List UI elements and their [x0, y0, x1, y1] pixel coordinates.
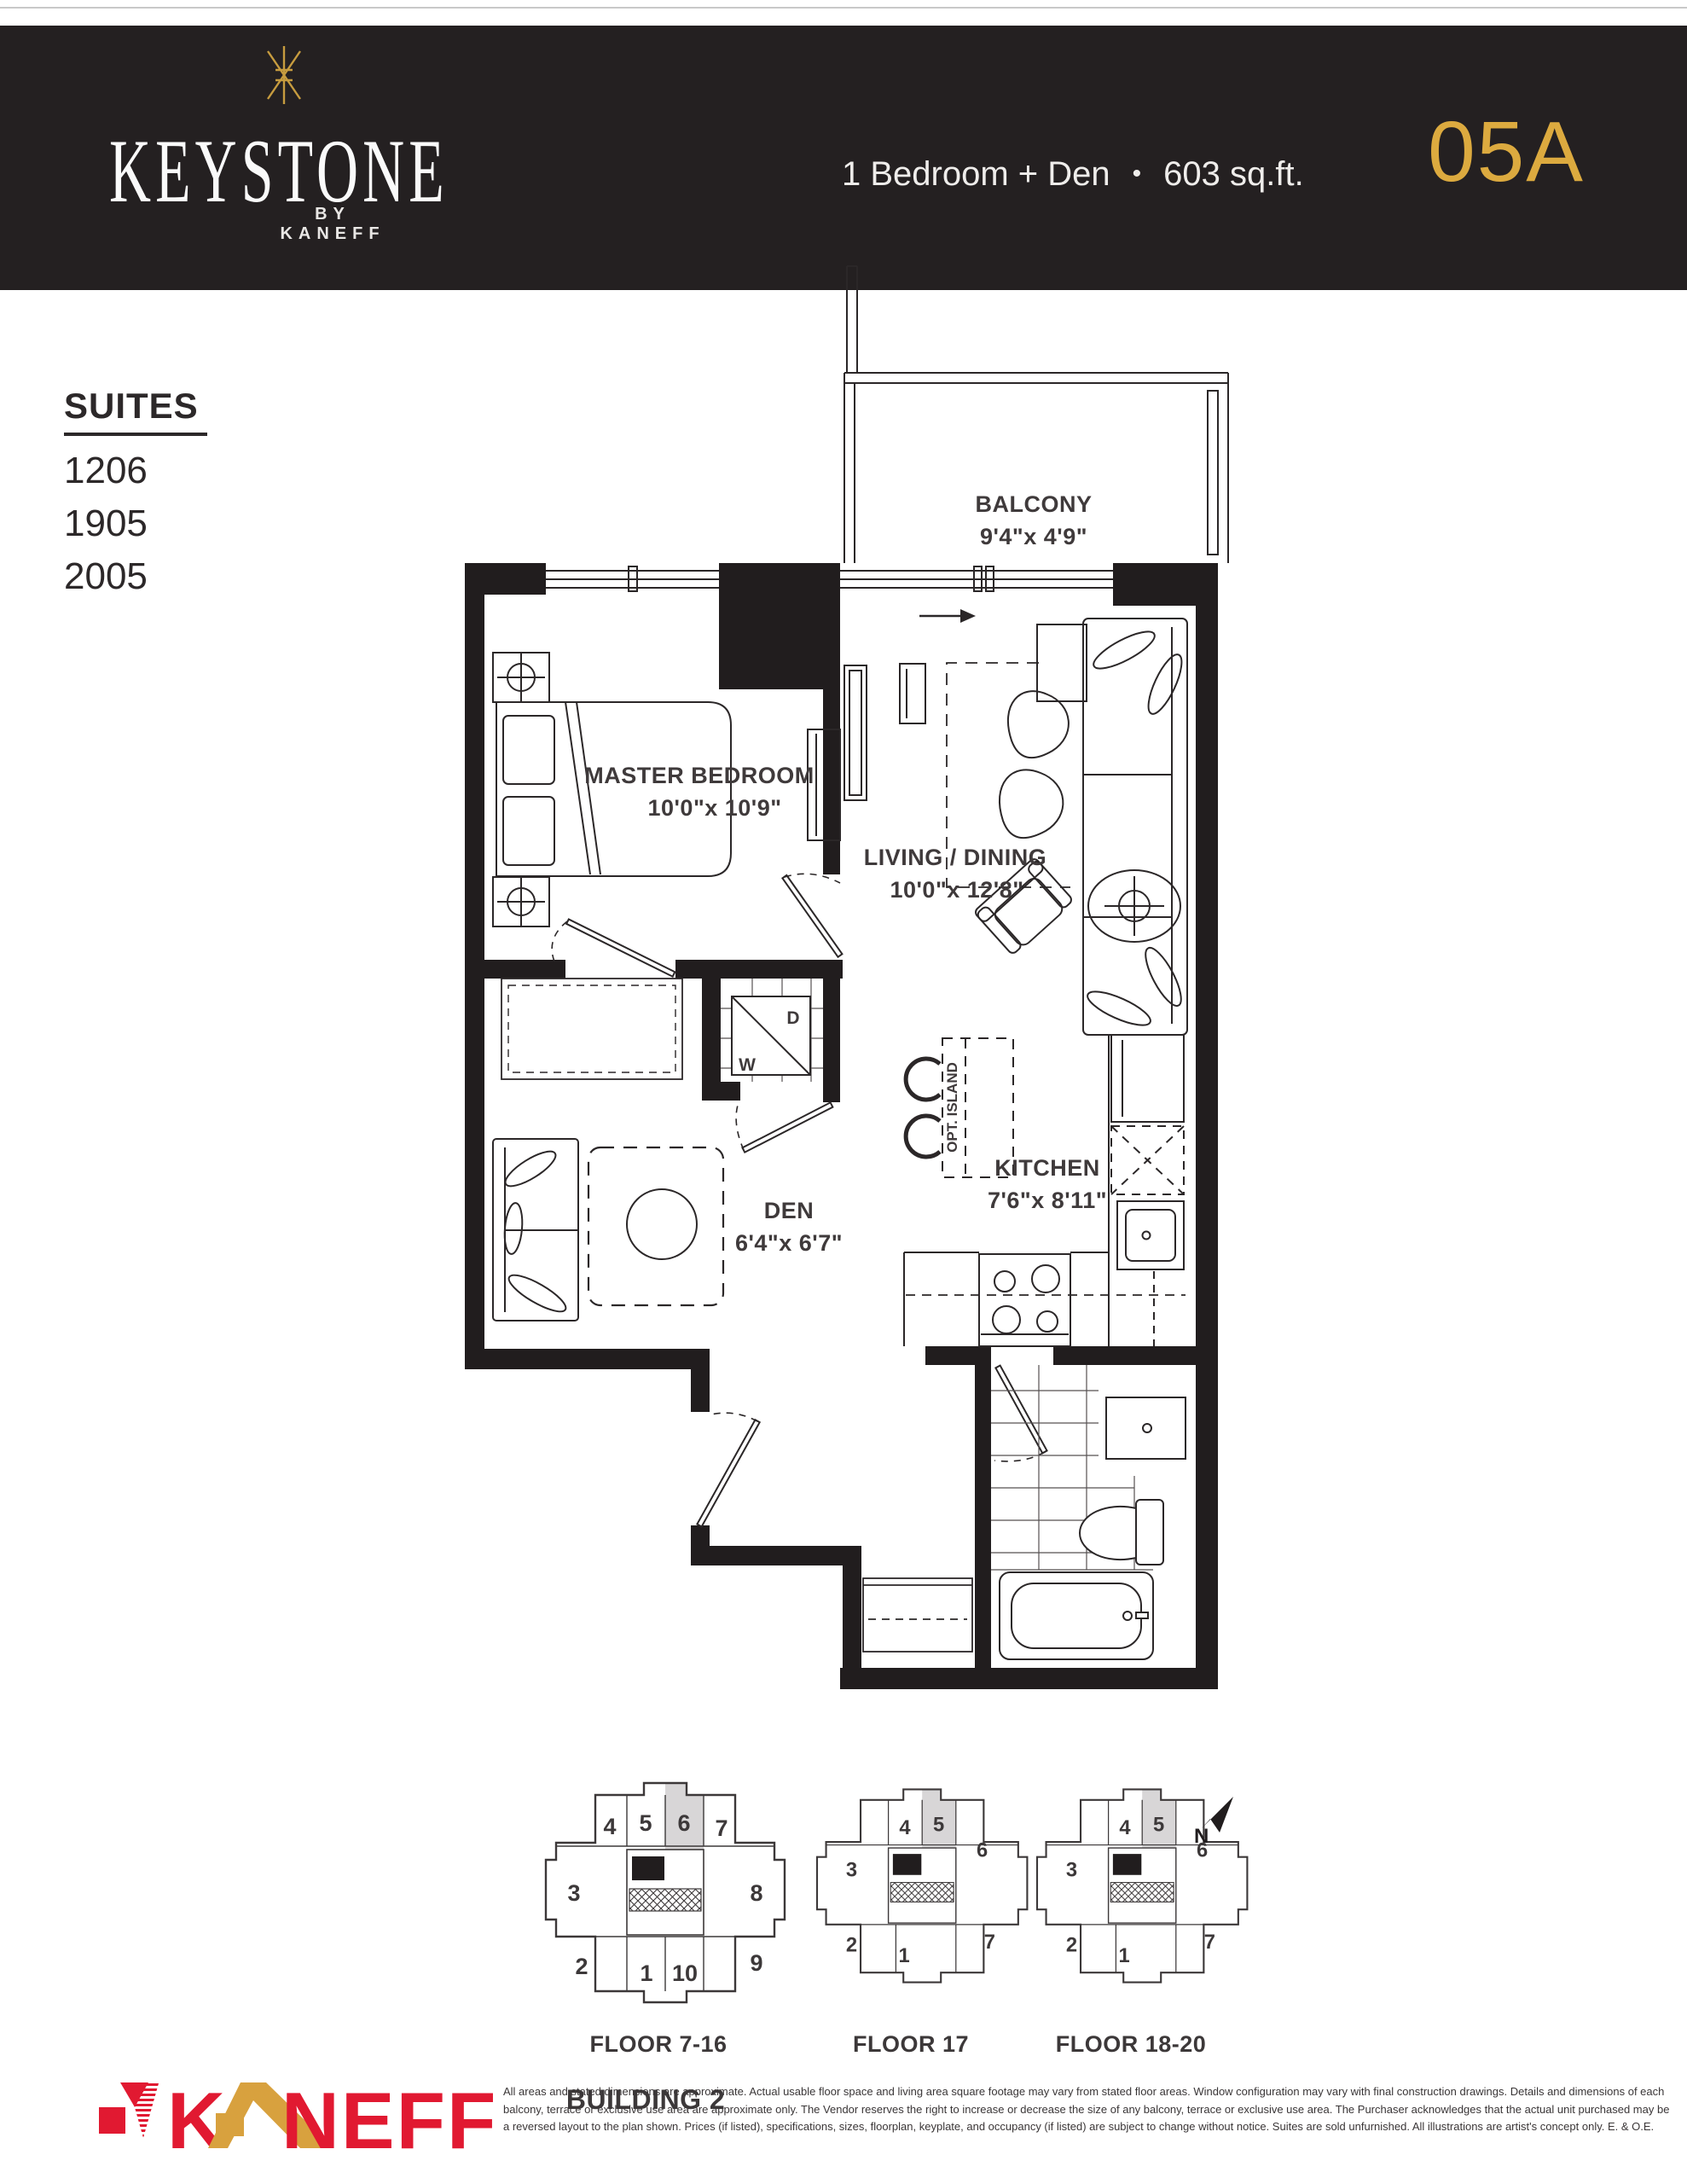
- room-label-kitchen: KITCHEN 7'6"x 8'11": [988, 1155, 1107, 1213]
- room-labels: BALCONY 9'4"x 4'9" MASTER BEDROOM 10'0"x…: [584, 491, 1107, 1256]
- keyplate-unit: 3: [1066, 1859, 1077, 1882]
- laundry-closet: D W: [721, 979, 823, 1082]
- keyplate-unit: 10: [672, 1960, 698, 1986]
- keyplate-unit: 8: [750, 1880, 762, 1906]
- keyplate-unit-highlighted: 5: [1153, 1814, 1164, 1837]
- svg-text:9'4"x 4'9": 9'4"x 4'9": [980, 524, 1087, 549]
- kaneff-logo-neff: NEFF: [281, 2076, 497, 2165]
- brochure-page: KEYSTONE BY KANEFF 1 Bedroom + Den•603 s…: [0, 0, 1687, 2184]
- svg-text:BALCONY: BALCONY: [976, 491, 1093, 517]
- keyplate-caption: FLOOR 7-16: [589, 2031, 727, 2057]
- keyplate-unit: 1: [1118, 1944, 1129, 1967]
- keyplate-caption: FLOOR 18-20: [1056, 2031, 1207, 2057]
- keyplate-caption: FLOOR 17: [853, 2031, 969, 2057]
- room-label-balcony: BALCONY 9'4"x 4'9": [976, 491, 1093, 549]
- svg-text:10'0"x 10'9": 10'0"x 10'9": [647, 795, 781, 821]
- keyplate-unit: 5: [639, 1810, 652, 1836]
- keyplate-unit: 3: [567, 1880, 580, 1906]
- room-label-den: DEN 6'4"x 6'7": [735, 1198, 843, 1256]
- keyplate-unit: 2: [1066, 1934, 1077, 1957]
- svg-text:LIVING / DINING: LIVING / DINING: [864, 845, 1047, 870]
- keyplate-unit: 4: [1119, 1816, 1131, 1839]
- bedroom-closet: [501, 979, 682, 1079]
- opt-island-label: OPT. ISLAND: [944, 1062, 960, 1153]
- balcony-outline: [844, 266, 1228, 563]
- disclaimer-line: balcony, terrace or exclusive use area a…: [503, 2101, 1669, 2119]
- keyplate-unit: 4: [603, 1814, 616, 1839]
- svg-text:KITCHEN: KITCHEN: [994, 1155, 1100, 1181]
- entry-closet: [863, 1578, 972, 1652]
- keyplate-unit: 7: [984, 1931, 995, 1954]
- dryer-label: D: [786, 1008, 799, 1028]
- keyplate-unit: 1: [898, 1944, 909, 1967]
- svg-text:7'6"x 8'11": 7'6"x 8'11": [988, 1188, 1107, 1213]
- svg-text:DEN: DEN: [764, 1198, 815, 1223]
- living-furniture: [844, 619, 1188, 1035]
- den-furniture: [493, 1139, 723, 1321]
- kaneff-logo: K NEFF: [99, 2076, 497, 2165]
- floor-plan: D W: [0, 0, 1687, 2184]
- keyplate-unit: 7: [1204, 1931, 1215, 1954]
- disclaimer-line: All areas and stated dimensions are appr…: [503, 2083, 1669, 2101]
- svg-text:10'0"x 12'8": 10'0"x 12'8": [890, 877, 1023, 903]
- room-label-living-dining: LIVING / DINING 10'0"x 12'8": [864, 845, 1047, 903]
- keyplate-floor-17: 3 4 5 6 2 1 7: [817, 1789, 1027, 1982]
- keyplate-unit: 6: [977, 1839, 988, 1862]
- keyplate-unit: 3: [846, 1859, 857, 1882]
- keyplate-unit: 2: [846, 1934, 857, 1957]
- north-label: N: [1194, 1825, 1209, 1848]
- keyplate-floor-7-16: 4 5 6 7 3 8 2 1 10 9: [546, 1783, 785, 2002]
- slider-arrow-icon: [919, 609, 976, 623]
- room-label-master-bedroom: MASTER BEDROOM 10'0"x 10'9": [584, 763, 815, 821]
- svg-text:MASTER BEDROOM: MASTER BEDROOM: [584, 763, 815, 788]
- keyplate-unit: 9: [750, 1950, 762, 1976]
- keyplate-unit-highlighted: 6: [677, 1810, 690, 1836]
- keyplate-unit: 2: [575, 1954, 588, 1979]
- keyplate-unit: 1: [640, 1960, 652, 1986]
- svg-text:6'4"x 6'7": 6'4"x 6'7": [735, 1230, 843, 1256]
- disclaimer-line: a reversed layout to the plan shown. Pri…: [503, 2118, 1669, 2136]
- washer-label: W: [739, 1055, 756, 1075]
- keyplate-unit: 4: [899, 1816, 911, 1839]
- keyplate-unit: 7: [715, 1815, 728, 1841]
- compass: N: [1194, 1797, 1233, 1848]
- kaneff-mark-square: [99, 2107, 125, 2134]
- keyplate-unit-highlighted: 5: [933, 1814, 944, 1837]
- disclaimer: All areas and stated dimensions are appr…: [503, 2083, 1669, 2136]
